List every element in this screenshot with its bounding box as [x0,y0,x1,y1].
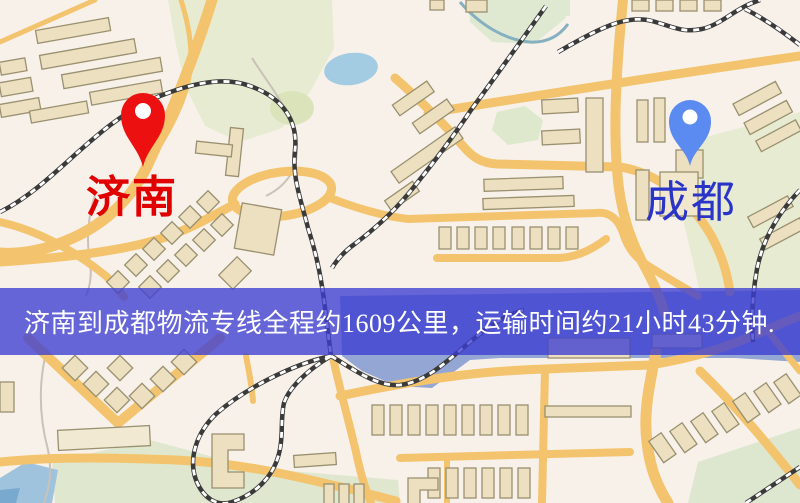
route-info-text: 济南到成都物流专线全程约1609公里，运输时间约21小时43分钟. [0,303,775,340]
destination-pin-hole [683,110,698,125]
destination-pin[interactable] [667,98,715,170]
destination-city-label: 成都 [645,181,737,225]
route-info-banner: 济南到成都物流专线全程约1609公里，运输时间约21小时43分钟. [0,288,800,355]
origin-pin[interactable] [113,88,173,174]
origin-pin-hole [135,103,151,119]
origin-city-label: 济南 [86,176,178,220]
map-canvas[interactable] [0,0,800,503]
map-screenshot: 济南 成都 济南到成都物流专线全程约1609公里，运输时间约21小时43分钟. [0,0,800,503]
